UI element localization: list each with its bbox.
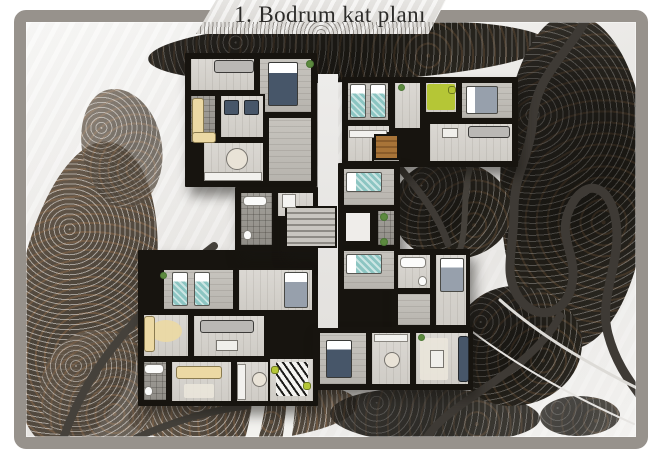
coffee-table <box>442 128 458 138</box>
plant <box>380 213 388 221</box>
toilet <box>243 230 252 240</box>
bed <box>440 258 464 292</box>
plant <box>380 238 388 246</box>
chair <box>448 86 456 94</box>
plant <box>160 272 167 279</box>
toilet <box>144 386 153 396</box>
coffee-table <box>216 340 238 351</box>
bed <box>350 84 366 118</box>
bed <box>346 254 382 274</box>
sofa <box>458 336 469 382</box>
scene <box>26 22 636 437</box>
coffee-table <box>430 350 444 368</box>
bathtub <box>400 257 426 268</box>
bed <box>370 84 386 118</box>
bed <box>346 172 382 192</box>
sofa <box>200 320 254 333</box>
sofa <box>176 366 222 379</box>
dining-table <box>384 352 400 368</box>
armchair <box>244 100 259 115</box>
sofa <box>214 60 254 73</box>
dining-table <box>226 148 248 170</box>
chair <box>303 382 311 390</box>
floor-plan <box>26 22 636 437</box>
artwork-window <box>26 22 636 437</box>
hall <box>396 292 432 327</box>
plant <box>306 60 314 68</box>
light-well <box>318 74 338 328</box>
sofa <box>468 126 510 138</box>
bathtub <box>243 196 267 206</box>
rug <box>184 384 214 398</box>
chair <box>271 366 279 374</box>
balcony-sofa <box>192 132 216 143</box>
dining-table <box>252 372 267 387</box>
shower <box>282 194 296 208</box>
bed <box>466 86 498 114</box>
bed <box>326 340 352 378</box>
kitchen-counter <box>204 172 262 181</box>
staircase <box>374 134 399 160</box>
kitchen-counter <box>374 334 408 342</box>
bed <box>194 272 210 306</box>
elevator <box>344 211 372 243</box>
bed <box>268 62 298 106</box>
page-title: 1. Bodrum kat planı <box>0 2 660 28</box>
zebra-rug <box>276 362 308 396</box>
armchair <box>224 100 239 115</box>
bed <box>284 272 308 308</box>
balcony-sofa <box>144 316 155 352</box>
kitchen-counter <box>237 364 246 400</box>
plant <box>398 84 405 91</box>
hall <box>267 116 313 183</box>
main-staircase <box>285 206 337 248</box>
plant <box>418 334 425 341</box>
bed <box>172 272 188 306</box>
floor-plan-poster: 1. Bodrum kat planı <box>0 0 660 466</box>
toilet <box>418 276 427 286</box>
bathtub <box>144 364 164 374</box>
